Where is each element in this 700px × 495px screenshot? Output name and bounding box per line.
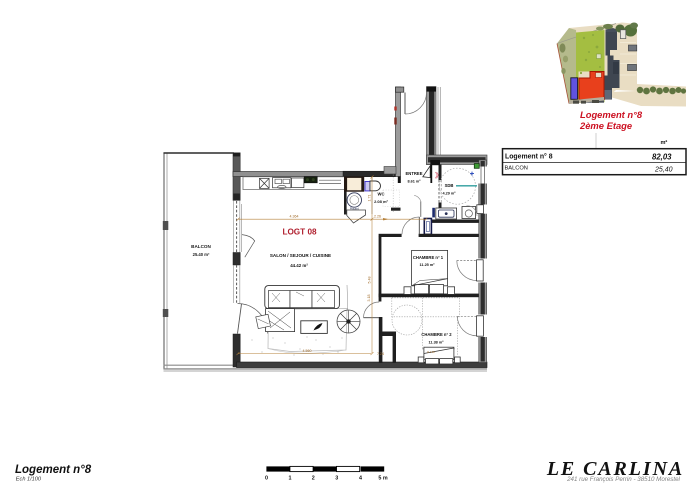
svg-text:Ech 1/100: Ech 1/100 <box>16 477 42 483</box>
svg-text:BALCON: BALCON <box>505 166 528 172</box>
svg-text:11.25 m²: 11.25 m² <box>420 263 436 267</box>
svg-text:2: 2 <box>312 476 315 482</box>
svg-text:4: 4 <box>359 476 362 482</box>
svg-text:1: 1 <box>289 476 292 482</box>
svg-text:CHAMBRE n° 2: CHAMBRE n° 2 <box>421 332 452 337</box>
svg-text:2.26: 2.26 <box>374 215 381 219</box>
svg-text:CHAMBRE n° 1: CHAMBRE n° 1 <box>413 255 444 260</box>
svg-text:44.42 m²: 44.42 m² <box>290 263 308 268</box>
svg-text:LOGT 08: LOGT 08 <box>282 228 317 237</box>
svg-text:7.24: 7.24 <box>377 352 384 356</box>
svg-text:1.71: 1.71 <box>368 195 372 202</box>
svg-text:SALON / SEJOUR / CUISINE: SALON / SEJOUR / CUISINE <box>270 253 331 258</box>
svg-text:SDB: SDB <box>445 183 454 188</box>
svg-text:lit 1.60: lit 1.60 <box>427 350 435 354</box>
svg-text:8.61 m²: 8.61 m² <box>407 180 421 184</box>
svg-text:Logement n° 8: Logement n° 8 <box>505 152 553 160</box>
svg-text:ENTREE: ENTREE <box>406 171 423 176</box>
svg-text:m²: m² <box>660 139 667 146</box>
svg-text:5 m: 5 m <box>378 476 387 482</box>
svg-text:4.29 m²: 4.29 m² <box>442 192 456 196</box>
svg-text:4.364: 4.364 <box>290 215 299 219</box>
svg-text:241 rue François Perrin - 3851: 241 rue François Perrin - 38510 Morestel <box>566 476 680 483</box>
svg-text:BALCON: BALCON <box>191 244 211 249</box>
svg-text:0: 0 <box>265 476 268 482</box>
svg-text:3: 3 <box>335 476 338 482</box>
svg-text:Placard: Placard <box>350 207 359 211</box>
svg-text:11.38 m²: 11.38 m² <box>429 340 445 344</box>
svg-text:2.08 m²: 2.08 m² <box>374 199 388 204</box>
svg-text:3.18: 3.18 <box>367 295 371 302</box>
svg-text:4.560: 4.560 <box>303 349 312 353</box>
svg-text:2ème Etage: 2ème Etage <box>579 120 632 131</box>
svg-text:5.48: 5.48 <box>368 277 372 284</box>
svg-text:Logement n°8: Logement n°8 <box>15 464 92 476</box>
svg-text:Logement n°8: Logement n°8 <box>580 109 643 120</box>
svg-text:WC: WC <box>378 192 385 197</box>
svg-text:25,40: 25,40 <box>654 167 673 174</box>
svg-text:25.40 m²: 25.40 m² <box>193 252 210 257</box>
svg-text:82,03: 82,03 <box>652 152 672 161</box>
